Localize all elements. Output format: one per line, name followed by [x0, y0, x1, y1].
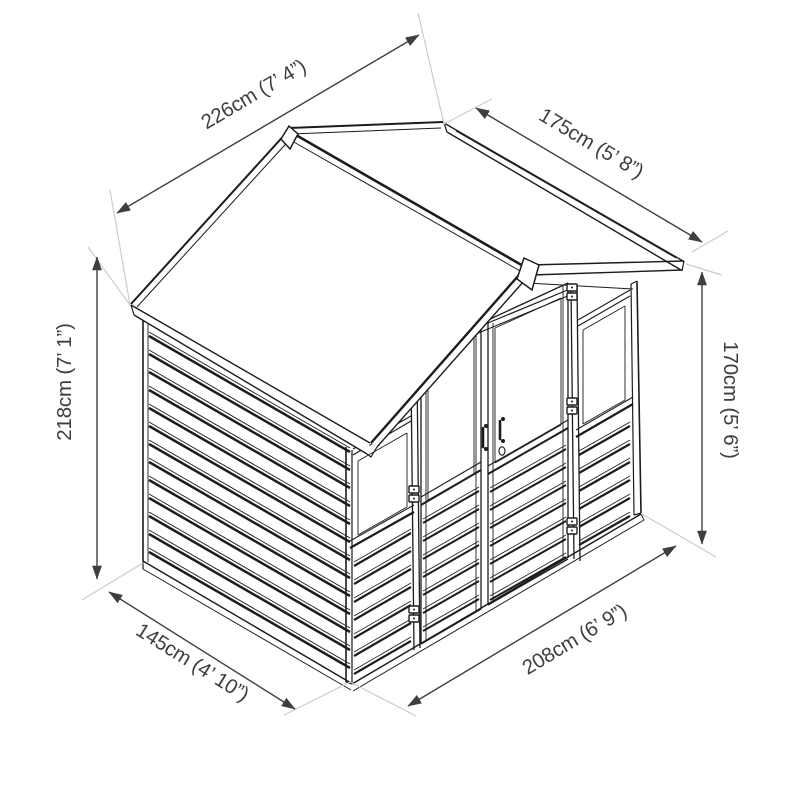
front-floor-bearer-edge: [353, 520, 644, 691]
dimension-ridge-height: 218cm (7’ 1”): [53, 257, 97, 579]
dimension-label-roof-depth: 175cm (5’ 8”): [535, 104, 648, 184]
left-handle-peg: [484, 424, 488, 428]
roof: [131, 122, 684, 457]
keyhole: [499, 447, 505, 455]
front-right-cladding: [579, 422, 630, 545]
door-handles: [483, 417, 505, 455]
dimension-label-roof-width: 226cm (7’ 4”): [197, 55, 310, 134]
floor-bearer-edge: [143, 569, 351, 690]
front-left-cladding: [354, 529, 411, 674]
right-window: [576, 306, 633, 437]
diagram-canvas: 226cm (7’ 4”) 175cm (5’ 8”) 218cm (7’ 1”…: [0, 0, 800, 800]
dimension-label-eaves-height: 170cm (5’ 6”): [719, 341, 742, 458]
gable-right-edge: [527, 283, 633, 289]
front-right-corner-post: [631, 281, 641, 515]
right-door: [488, 283, 568, 605]
right-door-cladding: [490, 445, 566, 600]
left-door-cladding: [423, 487, 479, 631]
left-door-mid-rail: [421, 462, 481, 497]
dimension-depth: 145cm (4’ 10”): [109, 592, 295, 709]
dimension-label-width: 208cm (6’ 9”): [518, 599, 630, 679]
dimension-eaves-height: 170cm (5’ 6”): [702, 272, 742, 544]
hinge-icon: [409, 486, 419, 502]
right-handle-peg: [501, 417, 505, 421]
dimension-label-depth: 145cm (4’ 10”): [132, 619, 253, 707]
dimension-label-ridge-height: 218cm (7’ 1”): [53, 323, 76, 440]
summerhouse-diagram: 226cm (7’ 4”) 175cm (5’ 8”) 218cm (7’ 1”…: [0, 0, 800, 800]
